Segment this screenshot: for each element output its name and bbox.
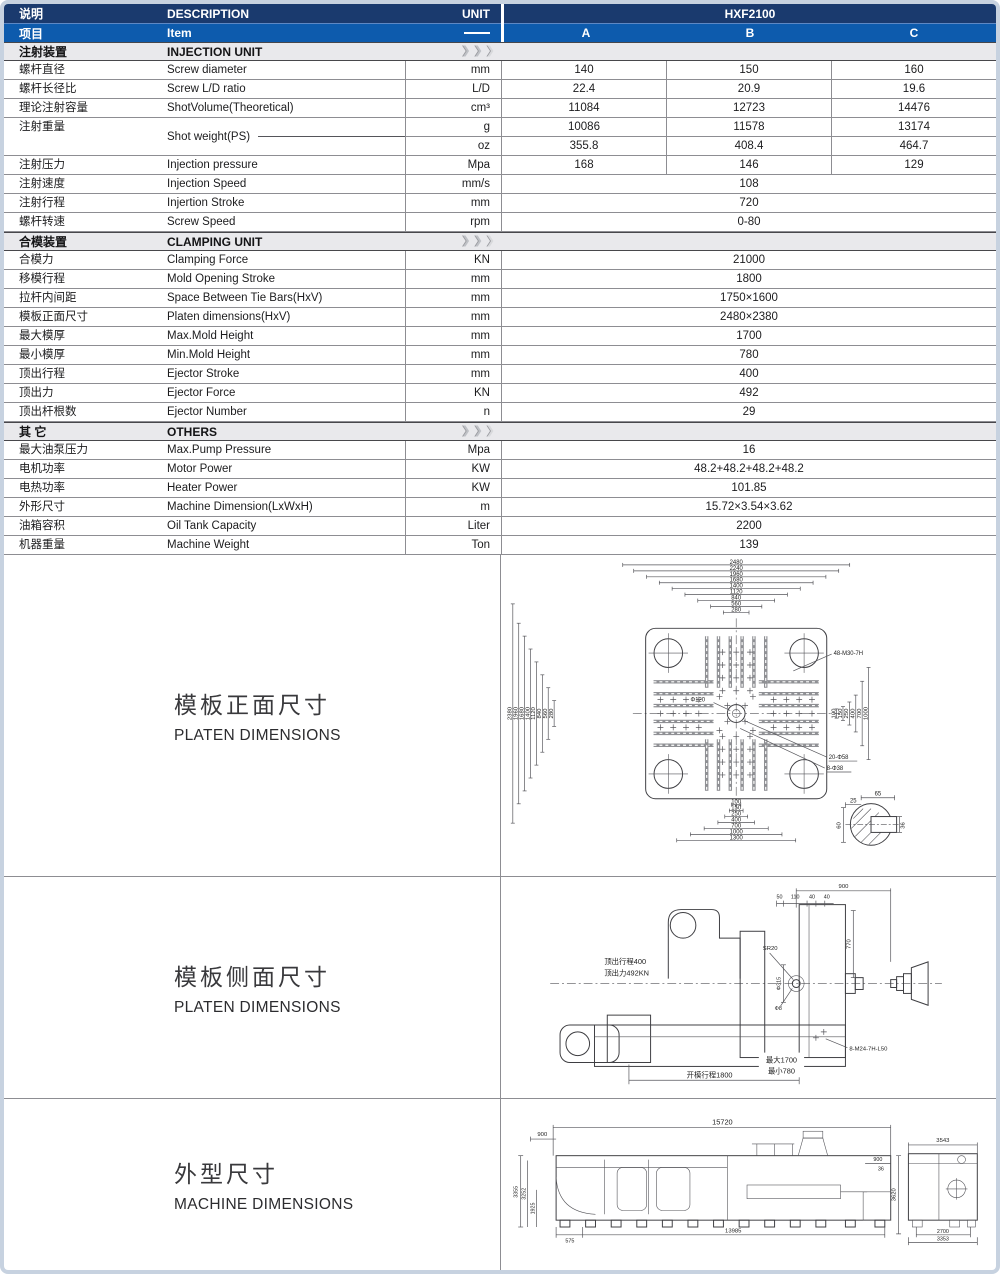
detail-height-dim: 60 [837, 821, 843, 828]
platen-side-drawing: 900 50 110 40 40 770 SR20 Φ315 Φ8 [501, 877, 996, 1098]
spec-row: 外形尺寸Machine Dimension(LxWxH)m15.72×3.54×… [4, 498, 996, 517]
row-label-en: Screw Speed [167, 213, 405, 231]
unit-cell: mm [405, 365, 501, 383]
machine-foot [875, 1220, 885, 1227]
value-cells: 140150160 [501, 61, 996, 79]
value-cell: 48.2+48.2+48.2+48.2 [502, 460, 996, 478]
unit-cell: KW [405, 460, 501, 478]
header-variants: A B C [504, 23, 996, 42]
value-cell-a: 168 [502, 156, 666, 174]
side-top-width-dim: 900 [839, 884, 850, 890]
row-label-cn: 最小模厚 [4, 346, 167, 364]
holes-large-label: 20-Φ58 [829, 755, 849, 761]
spec-row: 注射速度Injection Speedmm/s108 [4, 175, 996, 194]
value-cell: 492 [502, 384, 996, 402]
value-cell-c: 160 [831, 61, 996, 79]
shot-weight-line [258, 136, 405, 137]
machine-foot [688, 1220, 698, 1227]
row-label-cn: 注射重量 [4, 118, 167, 155]
unit-cell: mm [405, 289, 501, 307]
platen-front-section: 模板正面尺寸 PLATEN DIMENSIONS 248022401960168… [4, 555, 996, 876]
row-label-cn: 注射速度 [4, 175, 167, 193]
unit-cell: mm [405, 61, 501, 79]
machine-h1-dim: 3355 [514, 1186, 520, 1198]
value-cell: 1800 [502, 270, 996, 288]
value-cell-c: 464.7 [831, 137, 996, 155]
machine-foot [790, 1220, 800, 1227]
row-label-en: Screw L/D ratio [167, 80, 405, 98]
row-label-cn: 油箱容积 [4, 517, 167, 535]
machine-length-dim: 15720 [712, 1117, 732, 1126]
spec-row: 螺杆转速Screw Speedrpm0-80 [4, 213, 996, 232]
dim-label: 400 [851, 708, 857, 719]
row-label-en: Space Between Tie Bars(HxV) [167, 289, 405, 307]
platen-side-title-block: 模板侧面尺寸 PLATEN DIMENSIONS [4, 877, 501, 1098]
spec-row: 螺杆直径Screw diametermm140150160 [4, 61, 996, 80]
value-cell: 29 [502, 403, 996, 421]
dim-label: 280 [731, 607, 742, 613]
machine-foot [637, 1220, 647, 1227]
row-label-en: Shot weight(PS) [167, 118, 405, 155]
section-spacer [501, 233, 996, 250]
chevron-right-icon: ❯ [486, 233, 495, 250]
machine-foot [560, 1220, 570, 1227]
side-bolts-label: 8-M24-7H-L50 [849, 1047, 888, 1053]
value-cell-b: 408.4 [666, 137, 831, 155]
chevron-right-icon: ❯ [461, 233, 470, 250]
dim-label: 1300 [730, 835, 744, 841]
row-label-cn: 拉杆内间距 [4, 289, 167, 307]
spec-row: 模板正面尺寸Platen dimensions(HxV)mm2480×2380 [4, 308, 996, 327]
machine-right-small-dim: 36 [878, 1166, 884, 1172]
row-label-en: Max.Mold Height [167, 327, 405, 345]
spec-row: 油箱容积Oil Tank CapacityLiter2200 [4, 517, 996, 536]
row-label-en: Machine Dimension(LxWxH) [167, 498, 405, 516]
row-label-en: Ejector Number [167, 403, 405, 421]
max-mold-height-note: 最大1700 [766, 1055, 797, 1064]
holes-small-label: 8-Φ38 [827, 766, 844, 772]
detail-left-dim: 25 [850, 799, 857, 805]
row-label-cn: 模板正面尺寸 [4, 308, 167, 326]
row-label-en: Max.Pump Pressure [167, 441, 405, 459]
unit-cell: Mpa [405, 156, 501, 174]
section-chevrons-icon: ❯❯❯ [405, 233, 501, 250]
value-cells: 139 [501, 536, 996, 554]
value-cells: 780 [501, 346, 996, 364]
section-title-en: INJECTION UNIT [167, 43, 405, 60]
ring-dia-label: Φ315 [776, 977, 782, 990]
machine-foot [739, 1220, 749, 1227]
chevron-right-icon: ❯ [474, 423, 483, 440]
platen-front-title-cn: 模板正面尺寸 [174, 686, 500, 720]
spec-row: 顶出行程Ejector Strokemm400 [4, 365, 996, 384]
machine-foot [611, 1220, 621, 1227]
spec-table-body: 注射装置INJECTION UNIT❯❯❯螺杆直径Screw diameterm… [4, 42, 996, 555]
header-model: HXF2100 [504, 4, 996, 23]
unit-cell: cm³ [405, 99, 501, 117]
bolt-pattern-label: 48-M30-7H [834, 651, 863, 657]
section-row: 其 它OTHERS❯❯❯ [4, 422, 996, 441]
row-label-cn: 机器重量 [4, 536, 167, 554]
value-cells: 400 [501, 365, 996, 383]
row-label-en: Injertion Stroke [167, 194, 405, 212]
row-label-en: Injection pressure [167, 156, 405, 174]
header-unit-label: UNIT [405, 7, 501, 21]
value-cells: 1800 [501, 270, 996, 288]
hole-dia-label: Φ8 [775, 1006, 782, 1012]
machine-height-right-dim: 3620 [892, 1188, 898, 1202]
chevron-right-icon: ❯ [486, 43, 495, 60]
value-cells: 21000 [501, 251, 996, 269]
spec-row: 理论注射容量ShotVolume(Theoretical)cm³11084127… [4, 99, 996, 118]
spec-row: 注射压力Injection pressureMpa168146129 [4, 156, 996, 175]
value-cells: 15.72×3.54×3.62 [501, 498, 996, 516]
ejector-force-note: 顶出力492KN [604, 969, 649, 978]
row-label-en: Ejector Force [167, 384, 405, 402]
value-cells: 2200 [501, 517, 996, 535]
value-cell: 2480×2380 [502, 308, 996, 326]
machine-base-length-dim: 13985 [725, 1228, 742, 1234]
section-title-cn: 其 它 [4, 423, 167, 440]
value-cell-c: 13174 [831, 118, 996, 136]
dim-label: 1000 [863, 706, 869, 720]
side-offset1-dim: 50 [776, 895, 782, 901]
platen-front-drawing: 2480224019601680140011208405602802380196… [501, 555, 996, 876]
row-label-cn: 合模力 [4, 251, 167, 269]
value-cells: 720 [501, 194, 996, 212]
value-cell: 15.72×3.54×3.62 [502, 498, 996, 516]
dim-label: 250 [844, 708, 850, 719]
dim-label: 150 [838, 708, 844, 719]
value-cell: 720 [502, 194, 996, 212]
table-header-row-2: 项目 Item A B C [4, 23, 996, 42]
spec-sheet-page: 说明 DESCRIPTION UNIT HXF2100 项目 Item A B … [0, 0, 1000, 1274]
unit-cell: m [405, 498, 501, 516]
machine-right-top-dim: 900 [873, 1157, 882, 1163]
unit-cell: mm [405, 270, 501, 288]
row-label-en: Platen dimensions(HxV) [167, 308, 405, 326]
shot-weight-subrow: g100861157813174 [405, 118, 996, 137]
ejector-stroke-note: 顶出行程400 [604, 957, 646, 966]
row-label-cn: 理论注射容量 [4, 99, 167, 117]
spec-row: 螺杆长径比Screw L/D ratioL/D22.420.919.6 [4, 80, 996, 99]
row-label-cn: 螺杆转速 [4, 213, 167, 231]
value-cells: 110841272314476 [501, 99, 996, 117]
machine-dims-title-cn: 外型尺寸 [174, 1155, 500, 1189]
value-cells: 2480×2380 [501, 308, 996, 326]
spec-row: 电机功率Motor PowerKW48.2+48.2+48.2+48.2 [4, 460, 996, 479]
machine-dims-drawing: 15720 900 3355 3252 1925 575 13985 [501, 1099, 996, 1270]
machine-base-left-dim: 575 [565, 1239, 574, 1245]
row-label-en: Mold Opening Stroke [167, 270, 405, 288]
row-label-en: Machine Weight [167, 536, 405, 554]
value-cells: 0-80 [501, 213, 996, 231]
value-cell: 1700 [502, 327, 996, 345]
row-label-en: Screw diameter [167, 61, 405, 79]
machine-dims-section: 外型尺寸 MACHINE DIMENSIONS [4, 1098, 996, 1270]
unit-cell: KW [405, 479, 501, 497]
platen-side-section: 模板侧面尺寸 PLATEN DIMENSIONS [4, 876, 996, 1098]
row-label-en: ShotVolume(Theoretical) [167, 99, 405, 117]
spec-row: 拉杆内间距Space Between Tie Bars(HxV)mm1750×1… [4, 289, 996, 308]
dim-label: 700 [857, 708, 863, 719]
chevron-right-icon: ❯ [486, 423, 495, 440]
value-cells: 100861157813174 [501, 118, 996, 136]
section-chevrons-icon: ❯❯❯ [405, 43, 501, 60]
unit-cell: Ton [405, 536, 501, 554]
section-title-en: OTHERS [167, 423, 405, 440]
machine-h3-dim: 1925 [530, 1202, 536, 1214]
value-cell: 2200 [502, 517, 996, 535]
header-item-cn: 项目 [4, 25, 167, 42]
row-label-cn: 注射压力 [4, 156, 167, 174]
machine-dims-title-block: 外型尺寸 MACHINE DIMENSIONS [4, 1099, 501, 1270]
detail-top-dim: 65 [875, 792, 882, 798]
spec-row: 顶出力Ejector ForceKN492 [4, 384, 996, 403]
value-cell: 780 [502, 346, 996, 364]
unit-cell: n [405, 403, 501, 421]
machine-foot [765, 1220, 775, 1227]
value-cell-b: 146 [666, 156, 831, 174]
machine-foot [662, 1220, 672, 1227]
unit-cell: KN [405, 251, 501, 269]
row-label-cn: 最大模厚 [4, 327, 167, 345]
chevron-right-icon: ❯ [461, 423, 470, 440]
value-cells: 48.2+48.2+48.2+48.2 [501, 460, 996, 478]
row-label-en: Oil Tank Capacity [167, 517, 405, 535]
value-cell-b: 11578 [666, 118, 831, 136]
section-title-en: CLAMPING UNIT [167, 233, 405, 250]
spec-row: 移模行程Mold Opening Strokemm1800 [4, 270, 996, 289]
spec-row: 最大油泵压力Max.Pump PressureMpa16 [4, 441, 996, 460]
machine-foot [845, 1220, 855, 1227]
section-row: 注射装置INJECTION UNIT❯❯❯ [4, 42, 996, 61]
row-label-cn: 注射行程 [4, 194, 167, 212]
row-label-cn: 螺杆直径 [4, 61, 167, 79]
value-cells: 108 [501, 175, 996, 193]
table-header-row-1: 说明 DESCRIPTION UNIT HXF2100 [4, 4, 996, 23]
platen-side-drawing-cell: 900 50 110 40 40 770 SR20 Φ315 Φ8 [501, 877, 996, 1098]
value-cell-c: 129 [831, 156, 996, 174]
chevron-right-icon: ❯ [474, 43, 483, 60]
machine-foot [816, 1220, 826, 1227]
header-desc-en: DESCRIPTION [167, 7, 405, 21]
variant-b-label: B [668, 26, 832, 40]
center-hole-label: Φ120 [691, 698, 706, 704]
platen-front-title-en: PLATEN DIMENSIONS [174, 727, 500, 745]
section-title-cn: 注射装置 [4, 43, 167, 60]
header-desc-cn: 说明 [4, 5, 167, 22]
row-label-en-text: Shot weight(PS) [167, 128, 250, 146]
value-cell: 139 [502, 536, 996, 554]
row-label-cn: 顶出杆根数 [4, 403, 167, 421]
machine-foot [586, 1220, 596, 1227]
spec-row: 最大模厚Max.Mold Heightmm1700 [4, 327, 996, 346]
section-title-cn: 合模装置 [4, 233, 167, 250]
row-label-cn: 最大油泵压力 [4, 441, 167, 459]
row-label-en: Clamping Force [167, 251, 405, 269]
machine-h2-dim: 3252 [522, 1188, 528, 1200]
platen-front-drawing-cell: 2480224019601680140011208405602802380196… [501, 555, 996, 876]
unit-cell: mm [405, 194, 501, 212]
value-cells: 22.420.919.6 [501, 80, 996, 98]
value-cell-a: 22.4 [502, 80, 666, 98]
section-chevrons-icon: ❯❯❯ [405, 423, 501, 440]
value-cells: 355.8408.4464.7 [501, 137, 996, 155]
side-offset4-dim: 40 [824, 895, 830, 901]
value-cells: 1700 [501, 327, 996, 345]
value-cell: 16 [502, 441, 996, 459]
value-cell-c: 14476 [831, 99, 996, 117]
variant-a-label: A [504, 26, 668, 40]
unit-cell: mm/s [405, 175, 501, 193]
nozzle-radius-label: SR20 [763, 946, 778, 952]
unit-cell: Liter [405, 517, 501, 535]
header-left-block: 说明 DESCRIPTION UNIT [4, 4, 501, 23]
value-cell: 1750×1600 [502, 289, 996, 307]
section-spacer [501, 43, 996, 60]
machine-dims-title-en: MACHINE DIMENSIONS [174, 1196, 500, 1214]
value-cell-a: 140 [502, 61, 666, 79]
row-label-cn: 电热功率 [4, 479, 167, 497]
unit-cell: rpm [405, 213, 501, 231]
value-cell-a: 355.8 [502, 137, 666, 155]
value-cell-b: 150 [666, 61, 831, 79]
platen-side-title-en: PLATEN DIMENSIONS [174, 999, 500, 1017]
dim-label: 100 [831, 708, 837, 719]
row-label-cn: 移模行程 [4, 270, 167, 288]
spec-row: 合模力Clamping ForceKN21000 [4, 251, 996, 270]
side-offset3-dim: 40 [809, 895, 815, 901]
value-cell-a: 11084 [502, 99, 666, 117]
value-cells: 168146129 [501, 156, 996, 174]
section-row: 合模装置CLAMPING UNIT❯❯❯ [4, 232, 996, 251]
end-width-top-dim: 3543 [936, 1138, 950, 1144]
unit-cell: KN [405, 384, 501, 402]
opening-stroke-dim: 开模行程1800 [687, 1070, 733, 1079]
value-cell-a: 10086 [502, 118, 666, 136]
value-cells: 16 [501, 441, 996, 459]
value-cell: 21000 [502, 251, 996, 269]
platen-front-title-block: 模板正面尺寸 PLATEN DIMENSIONS [4, 555, 501, 876]
unit-dash [405, 26, 501, 40]
end-width-inner-dim: 2700 [937, 1229, 949, 1235]
value-cells: 101.85 [501, 479, 996, 497]
row-label-cn: 顶出力 [4, 384, 167, 402]
unit-cell: L/D [405, 80, 501, 98]
value-cell-b: 20.9 [666, 80, 831, 98]
chevron-right-icon: ❯ [474, 233, 483, 250]
spec-row: 电热功率Heater PowerKW101.85 [4, 479, 996, 498]
detail-right-dim: 36 [900, 821, 906, 828]
machine-left-top-dim: 900 [537, 1132, 548, 1138]
machine-dims-drawing-cell: 15720 900 3355 3252 1925 575 13985 [501, 1099, 996, 1270]
spec-row: 机器重量Machine WeightTon139 [4, 536, 996, 555]
end-width-dim: 3353 [937, 1237, 949, 1243]
variant-c-label: C [832, 26, 996, 40]
row-label-en: Min.Mold Height [167, 346, 405, 364]
unit-cell: mm [405, 346, 501, 364]
row-label-cn: 电机功率 [4, 460, 167, 478]
value-cell: 108 [502, 175, 996, 193]
value-cells: 492 [501, 384, 996, 402]
min-mold-height-note: 最小780 [768, 1066, 795, 1075]
row-label-en: Motor Power [167, 460, 405, 478]
row-label-en: Injection Speed [167, 175, 405, 193]
value-cells: 1750×1600 [501, 289, 996, 307]
chevron-right-icon: ❯ [461, 43, 470, 60]
side-height-dim: 770 [846, 938, 852, 949]
value-cell-b: 12723 [666, 99, 831, 117]
unit-cell: mm [405, 308, 501, 326]
spec-row: 注射行程Injertion Strokemm720 [4, 194, 996, 213]
value-cell: 101.85 [502, 479, 996, 497]
row-label-cn: 外形尺寸 [4, 498, 167, 516]
section-spacer [501, 423, 996, 440]
machine-foot [714, 1220, 724, 1227]
unit-cell: oz [405, 137, 501, 155]
value-cell: 0-80 [502, 213, 996, 231]
row-label-en: Heater Power [167, 479, 405, 497]
shot-weight-subrow: oz355.8408.4464.7 [405, 137, 996, 155]
spec-row: 顶出杆根数Ejector Numbern29 [4, 403, 996, 422]
value-cell: 400 [502, 365, 996, 383]
value-cell-c: 19.6 [831, 80, 996, 98]
unit-cell: g [405, 118, 501, 136]
header-item-en: Item [167, 26, 405, 40]
spec-row: 最小模厚Min.Mold Heightmm780 [4, 346, 996, 365]
header-left-block-2: 项目 Item [4, 23, 501, 42]
shot-weight-subrows: g100861157813174oz355.8408.4464.7 [405, 118, 996, 155]
side-offset2-dim: 110 [791, 895, 800, 901]
value-cells: 29 [501, 403, 996, 421]
row-label-en: Ejector Stroke [167, 365, 405, 383]
unit-cell: mm [405, 327, 501, 345]
row-label-cn: 螺杆长径比 [4, 80, 167, 98]
dim-label: 280 [549, 708, 555, 719]
platen-side-title-cn: 模板侧面尺寸 [174, 958, 500, 992]
spec-row-shot-weight: 注射重量Shot weight(PS)g100861157813174oz355… [4, 118, 996, 156]
unit-cell: Mpa [405, 441, 501, 459]
row-label-cn: 顶出行程 [4, 365, 167, 383]
